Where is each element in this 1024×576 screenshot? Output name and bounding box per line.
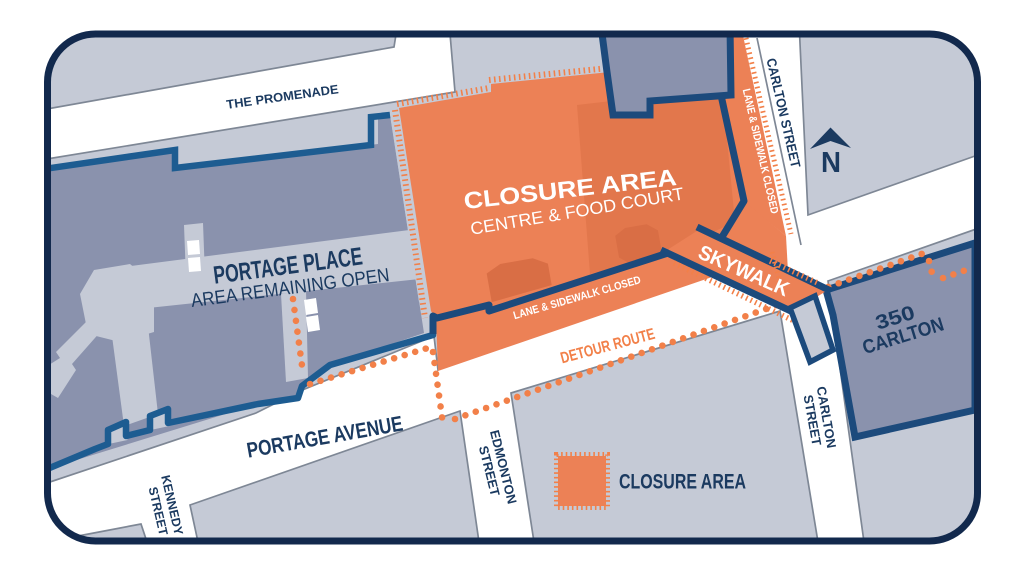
svg-text:CLOSURE AREA: CLOSURE AREA (619, 471, 746, 494)
svg-text:N: N (821, 147, 841, 179)
